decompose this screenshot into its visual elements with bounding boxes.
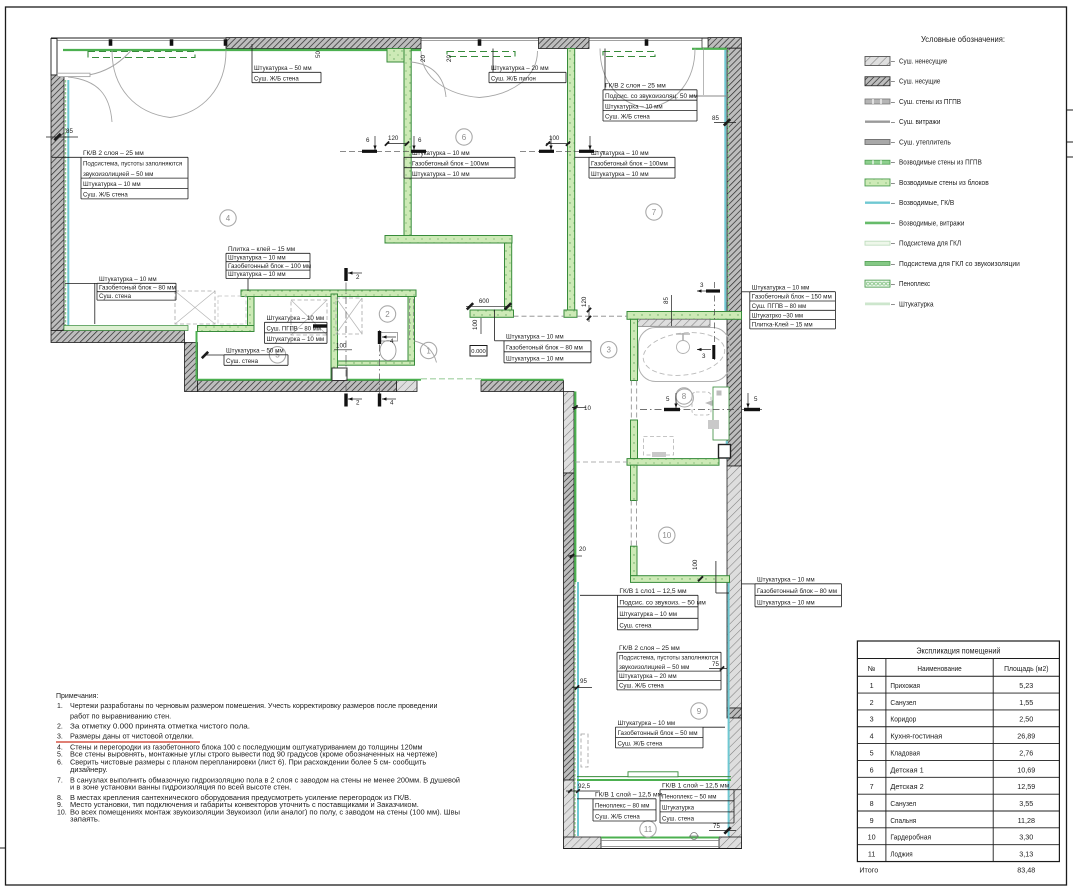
svg-text:5: 5	[870, 748, 874, 757]
svg-text:Суш. ПГПВ – 80 мм: Суш. ПГПВ – 80 мм	[752, 303, 807, 310]
svg-text:Сверить чистовые размеры с пла: Сверить чистовые размеры с планом перепл…	[70, 759, 427, 767]
svg-text:Штукатурка: Штукатурка	[662, 805, 694, 812]
svg-text:Штукатурка – 10 мм: Штукатурка – 10 мм	[757, 600, 815, 607]
svg-text:4: 4	[390, 400, 394, 407]
svg-text:1: 1	[870, 681, 874, 690]
svg-text:Подсистема для ГКЛ со звукоизо: Подсистема для ГКЛ со звукоизоляции	[899, 261, 1020, 268]
svg-text:и в зоне установки ванны гидро: и в зоне установки ванны гидроизоляция п…	[70, 784, 291, 792]
svg-text:ГК/В 2 слоя – 25 мм: ГК/В 2 слоя – 25 мм	[619, 645, 680, 652]
svg-text:5: 5	[754, 396, 758, 403]
svg-text:7: 7	[870, 782, 874, 791]
svg-text:2: 2	[356, 400, 360, 407]
svg-text:1: 1	[426, 346, 431, 355]
svg-text:Итого: Итого	[859, 866, 878, 875]
svg-text:ГК/В 2 слоя – 25 мм: ГК/В 2 слоя – 25 мм	[605, 83, 666, 90]
svg-text:Штукатурка – 10 мм: Штукатурка – 10 мм	[267, 336, 325, 343]
svg-text:20: 20	[420, 55, 427, 62]
svg-text:Возводимые, ГК/В: Возводимые, ГК/В	[899, 200, 954, 207]
svg-text:Штукатурка – 10 мм: Штукатурка – 10 мм	[83, 181, 141, 188]
svg-text:Суш. ненесущие: Суш. ненесущие	[899, 58, 947, 65]
svg-text:звукоизолицией – 50 мм: звукоизолицией – 50 мм	[83, 170, 154, 178]
svg-text:Площадь (м2): Площадь (м2)	[1004, 664, 1048, 673]
svg-text:75: 75	[713, 823, 720, 830]
svg-text:Суш. стена: Суш. стена	[99, 293, 131, 300]
svg-text:Спальня: Спальня	[890, 816, 916, 825]
svg-text:0.000: 0.000	[471, 349, 486, 355]
svg-text:ГК/В 2 слоя – 25 мм: ГК/В 2 слоя – 25 мм	[83, 150, 144, 157]
svg-text:9.: 9.	[57, 802, 63, 809]
svg-text:10: 10	[662, 531, 671, 540]
svg-text:Во всех помещениях монтаж звук: Во всех помещениях монтаж звукоизоляции …	[70, 810, 460, 817]
svg-text:Штукатурка – 20 мм: Штукатурка – 20 мм	[619, 673, 677, 680]
svg-text:10: 10	[584, 405, 591, 412]
svg-text:Суш. Ж/Б стена: Суш. Ж/Б стена	[83, 192, 128, 199]
svg-text:5.: 5.	[57, 752, 63, 759]
svg-text:85: 85	[66, 128, 73, 135]
svg-text:Подсистема, пустоты заполняютс: Подсистема, пустоты заполняются	[619, 654, 719, 661]
svg-text:6: 6	[366, 137, 370, 144]
svg-text:дизайнеру.: дизайнеру.	[70, 766, 108, 774]
svg-text:4: 4	[870, 732, 874, 741]
svg-text:85: 85	[712, 115, 719, 122]
svg-text:3,13: 3,13	[1019, 850, 1033, 859]
svg-text:Штукатурка – 10 мм: Штукатурка – 10 мм	[99, 276, 157, 283]
svg-text:Суш. Ж/Б стена: Суш. Ж/Б стена	[619, 683, 664, 690]
svg-text:Газобетоный блок – 80 мм: Газобетоный блок – 80 мм	[99, 283, 176, 291]
svg-text:–: –	[891, 58, 895, 65]
svg-text:8: 8	[870, 799, 874, 808]
svg-text:95: 95	[580, 678, 587, 685]
svg-text:10.: 10.	[57, 810, 67, 817]
svg-text:3: 3	[700, 282, 704, 289]
svg-text:2,50: 2,50	[1019, 715, 1033, 724]
svg-text:3: 3	[606, 346, 611, 355]
svg-text:В местах крепления сантехничес: В местах крепления сантехнического обору…	[70, 794, 411, 802]
svg-text:6: 6	[418, 137, 422, 144]
svg-text:Детская 2: Детская 2	[890, 782, 923, 791]
svg-text:Все стены выровнять, монтажные: Все стены выровнять, монтажные углы стро…	[70, 751, 438, 759]
svg-text:Штукатурка – 10 мм: Штукатурка – 10 мм	[506, 356, 564, 363]
svg-text:11,28: 11,28	[1018, 816, 1035, 825]
svg-text:Размеры даны от чистовой отдел: Размеры даны от чистовой отделки.	[70, 733, 194, 741]
svg-text:–: –	[891, 160, 895, 167]
svg-text:Детская 1: Детская 1	[890, 765, 923, 774]
svg-text:75: 75	[712, 661, 719, 668]
svg-text:–: –	[891, 261, 895, 268]
svg-text:Суш. стены из ПГПВ: Суш. стены из ПГПВ	[899, 99, 961, 106]
svg-text:–: –	[891, 220, 895, 227]
svg-text:12,59: 12,59	[1017, 782, 1035, 791]
svg-text:9: 9	[870, 816, 874, 825]
svg-text:Возводимые стены из блоков: Возводимые стены из блоков	[899, 179, 989, 187]
svg-text:5: 5	[666, 396, 670, 403]
svg-text:85: 85	[663, 297, 670, 304]
svg-text:ГК/В 1 сло1 – 12,5 мм: ГК/В 1 сло1 – 12,5 мм	[619, 588, 687, 595]
svg-text:Коридор: Коридор	[890, 715, 916, 724]
svg-text:20: 20	[446, 55, 453, 62]
svg-text:1.: 1.	[57, 703, 63, 710]
svg-text:За отметку 0.000 принята отм: За отметку 0.000 принята отметка чистого…	[70, 724, 250, 731]
svg-text:Суш. стена: Суш. стена	[226, 358, 258, 365]
svg-text:Гардеробная: Гардеробная	[890, 833, 931, 842]
svg-text:Суш. витражи: Суш. витражи	[899, 119, 940, 126]
svg-text:Штукатурка – 10 мм: Штукатурка – 10 мм	[591, 150, 649, 157]
svg-text:Подсистема для ГКЛ: Подсистема для ГКЛ	[899, 241, 961, 248]
svg-text:3,30: 3,30	[1019, 833, 1033, 842]
svg-text:Газобетонный блок – 80 мм: Газобетонный блок – 80 мм	[757, 587, 837, 595]
svg-text:Санузел: Санузел	[890, 698, 916, 707]
svg-text:100: 100	[472, 319, 479, 330]
svg-text:ГК/В 1 слой – 12,5 мм: ГК/В 1 слой – 12,5 мм	[595, 791, 663, 799]
svg-text:Штукатрко –30 мм: Штукатрко –30 мм	[752, 312, 804, 319]
svg-text:–: –	[891, 200, 895, 207]
svg-text:Суш. Ж/Б пилон: Суш. Ж/Б пилон	[491, 75, 536, 82]
svg-text:Штукатурка: Штукатурка	[899, 301, 934, 308]
svg-text:Пеноплекс – 80 мм: Пеноплекс – 80 мм	[595, 803, 650, 810]
svg-text:Штукатурка – 50 мм: Штукатурка – 50 мм	[226, 348, 284, 355]
svg-text:6: 6	[462, 133, 467, 142]
svg-text:5,23: 5,23	[1019, 681, 1033, 690]
svg-text:10: 10	[868, 833, 876, 842]
svg-text:2: 2	[385, 310, 390, 319]
svg-text:6: 6	[870, 765, 874, 774]
svg-text:Прихожая: Прихожая	[890, 681, 920, 690]
svg-text:Кухня-гостиная: Кухня-гостиная	[890, 732, 942, 741]
svg-text:Штукатурка – 10 мм: Штукатурка – 10 мм	[506, 334, 564, 341]
svg-text:Возводимые, витражи: Возводимые, витражи	[899, 220, 965, 227]
svg-text:–: –	[891, 139, 895, 146]
svg-text:8: 8	[682, 392, 687, 401]
svg-text:8.: 8.	[57, 795, 63, 802]
svg-text:20: 20	[579, 546, 586, 553]
svg-text:2,76: 2,76	[1019, 748, 1033, 757]
svg-text:4.: 4.	[57, 744, 63, 751]
svg-text:–: –	[891, 281, 895, 288]
svg-text:600: 600	[479, 298, 490, 305]
svg-text:Штукатурка – 10 мм: Штукатурка – 10 мм	[412, 171, 470, 178]
svg-text:Штукатурка – 10 мм: Штукатурка – 10 мм	[618, 720, 676, 727]
svg-text:Штукатурка – 10 мм: Штукатурка – 10 мм	[228, 254, 286, 261]
svg-text:Суш. стена: Суш. стена	[619, 623, 651, 630]
svg-text:–: –	[891, 301, 895, 308]
svg-text:Наименование: Наименование	[917, 664, 961, 673]
svg-text:50: 50	[315, 51, 322, 58]
svg-text:Газобетоный блок – 150 мм: Газобетоный блок – 150 мм	[752, 293, 832, 301]
svg-text:83,48: 83,48	[1017, 866, 1035, 875]
svg-text:Суш. Ж/Б стена: Суш. Ж/Б стена	[618, 741, 663, 748]
svg-text:Подсис. со звукоизоляц. 50 мм: Подсис. со звукоизоляц. 50 мм	[605, 93, 698, 100]
svg-text:7.: 7.	[57, 777, 63, 784]
svg-text:–: –	[891, 79, 895, 86]
svg-text:Пеноплекс: Пеноплекс	[899, 281, 931, 288]
svg-text:Санузел: Санузел	[890, 799, 916, 808]
svg-text:Штукатурка – 50 мм: Штукатурка – 50 мм	[254, 65, 312, 72]
svg-text:11: 11	[644, 825, 653, 834]
svg-text:Лоджия: Лоджия	[890, 850, 912, 859]
svg-text:запаять.: запаять.	[70, 817, 100, 824]
svg-text:6.: 6.	[57, 760, 63, 767]
svg-text:Стены и перегородки из газобет: Стены и перегородки из газобетонного бло…	[70, 743, 423, 751]
svg-text:работ по выравниванию стен.: работ по выравниванию стен.	[70, 712, 171, 720]
svg-text:ГК/В 1 слой – 12,5 мм: ГК/В 1 слой – 12,5 мм	[662, 781, 730, 789]
svg-text:Экспликация помещений: Экспликация помещений	[916, 646, 1000, 655]
svg-text:Кладовая: Кладовая	[890, 748, 920, 757]
svg-text:Пеноплекс – 50 мм: Пеноплекс – 50 мм	[662, 794, 717, 801]
svg-text:Условные обозначения:: Условные обозначения:	[921, 35, 1005, 44]
svg-text:звукоизолицией – 50 мм: звукоизолицией – 50 мм	[619, 663, 690, 671]
svg-text:Штукатурка – 10 мм: Штукатурка – 10 мм	[619, 611, 677, 618]
svg-text:Газобетонный блок – 100 мм: Газобетонный блок – 100 мм	[228, 262, 312, 270]
svg-text:Суш. Ж/Б стена: Суш. Ж/Б стена	[605, 114, 650, 121]
svg-text:Газобетоный блок – 80 мм: Газобетоный блок – 80 мм	[506, 344, 583, 352]
svg-text:4: 4	[390, 338, 394, 345]
svg-text:Штукатурка – 10 мм: Штукатурка – 10 мм	[605, 103, 663, 110]
svg-text:Суш. Ж/Б стена: Суш. Ж/Б стена	[254, 75, 299, 82]
svg-text:Место установки, тип подключен: Место установки, тип подключения и габар…	[70, 801, 419, 809]
svg-text:Примечания:: Примечания:	[56, 693, 98, 700]
svg-text:В санузлах выполнить обмазочну: В санузлах выполнить обмазочную гидроизо…	[70, 776, 460, 784]
svg-text:№: №	[868, 664, 876, 673]
svg-text:2: 2	[870, 698, 874, 707]
svg-text:Суш. стена: Суш. стена	[662, 816, 694, 823]
svg-text:120: 120	[388, 135, 399, 142]
svg-text:Штукатурка – 10 мм: Штукатурка – 10 мм	[757, 577, 815, 584]
svg-text:3,55: 3,55	[1019, 799, 1033, 808]
svg-text:3.: 3.	[57, 734, 63, 741]
svg-text:Штукатурка – 10 мм: Штукатурка – 10 мм	[267, 315, 325, 322]
svg-text:4: 4	[226, 214, 231, 223]
svg-text:100: 100	[692, 559, 699, 570]
svg-text:11: 11	[868, 850, 875, 859]
svg-text:Штукатурка – 10 мм: Штукатурка – 10 мм	[752, 284, 810, 291]
svg-text:Газобетонный блок – 50 мм: Газобетонный блок – 50 мм	[618, 729, 698, 737]
svg-text:3: 3	[870, 715, 874, 724]
svg-text:Суш. утеплитель: Суш. утеплитель	[899, 139, 951, 146]
svg-text:Газобетоный блок – 100мм: Газобетоный блок – 100мм	[591, 159, 668, 167]
svg-text:10,69: 10,69	[1017, 765, 1035, 774]
svg-text:92,5: 92,5	[578, 783, 591, 790]
svg-text:Штукатурка – 10 мм: Штукатурка – 10 мм	[228, 271, 286, 278]
svg-text:–: –	[891, 99, 895, 106]
svg-text:3: 3	[702, 353, 706, 360]
svg-text:100: 100	[336, 343, 347, 350]
svg-text:9: 9	[697, 707, 702, 716]
svg-text:2.: 2.	[57, 724, 63, 731]
svg-text:7: 7	[652, 208, 657, 217]
svg-text:Суш. несущие: Суш. несущие	[899, 79, 940, 86]
svg-text:1,55: 1,55	[1019, 698, 1033, 707]
svg-text:Штукатурка – 10 мм: Штукатурка – 10 мм	[591, 171, 649, 178]
svg-text:Газобетоный блок – 100мм: Газобетоный блок – 100мм	[412, 159, 489, 167]
svg-text:Подсис. со звукоиз. – 50 мм: Подсис. со звукоиз. – 50 мм	[619, 600, 706, 607]
svg-text:Плитка-Клей – 15 мм: Плитка-Клей – 15 мм	[752, 321, 813, 329]
svg-text:Плитка – клей – 15 мм: Плитка – клей – 15 мм	[228, 245, 296, 253]
svg-text:Суш. Ж/Б стена: Суш. Ж/Б стена	[595, 814, 640, 821]
svg-text:26,89: 26,89	[1017, 732, 1035, 741]
svg-text:100: 100	[549, 135, 560, 142]
svg-text:Штукатурка – 20 мм: Штукатурка – 20 мм	[491, 65, 549, 72]
svg-text:–: –	[891, 180, 895, 187]
svg-text:120: 120	[581, 296, 588, 307]
svg-text:Подсистема, пустоты заполняютс: Подсистема, пустоты заполняются	[83, 160, 183, 167]
svg-text:–: –	[891, 241, 895, 248]
svg-text:Возводимые стены из ПГПВ: Возводимые стены из ПГПВ	[899, 160, 982, 167]
svg-text:–: –	[891, 119, 895, 126]
svg-text:Чертежи разработаны по черновы: Чертежи разработаны по черновым размером…	[70, 702, 438, 710]
svg-text:2: 2	[356, 274, 360, 281]
